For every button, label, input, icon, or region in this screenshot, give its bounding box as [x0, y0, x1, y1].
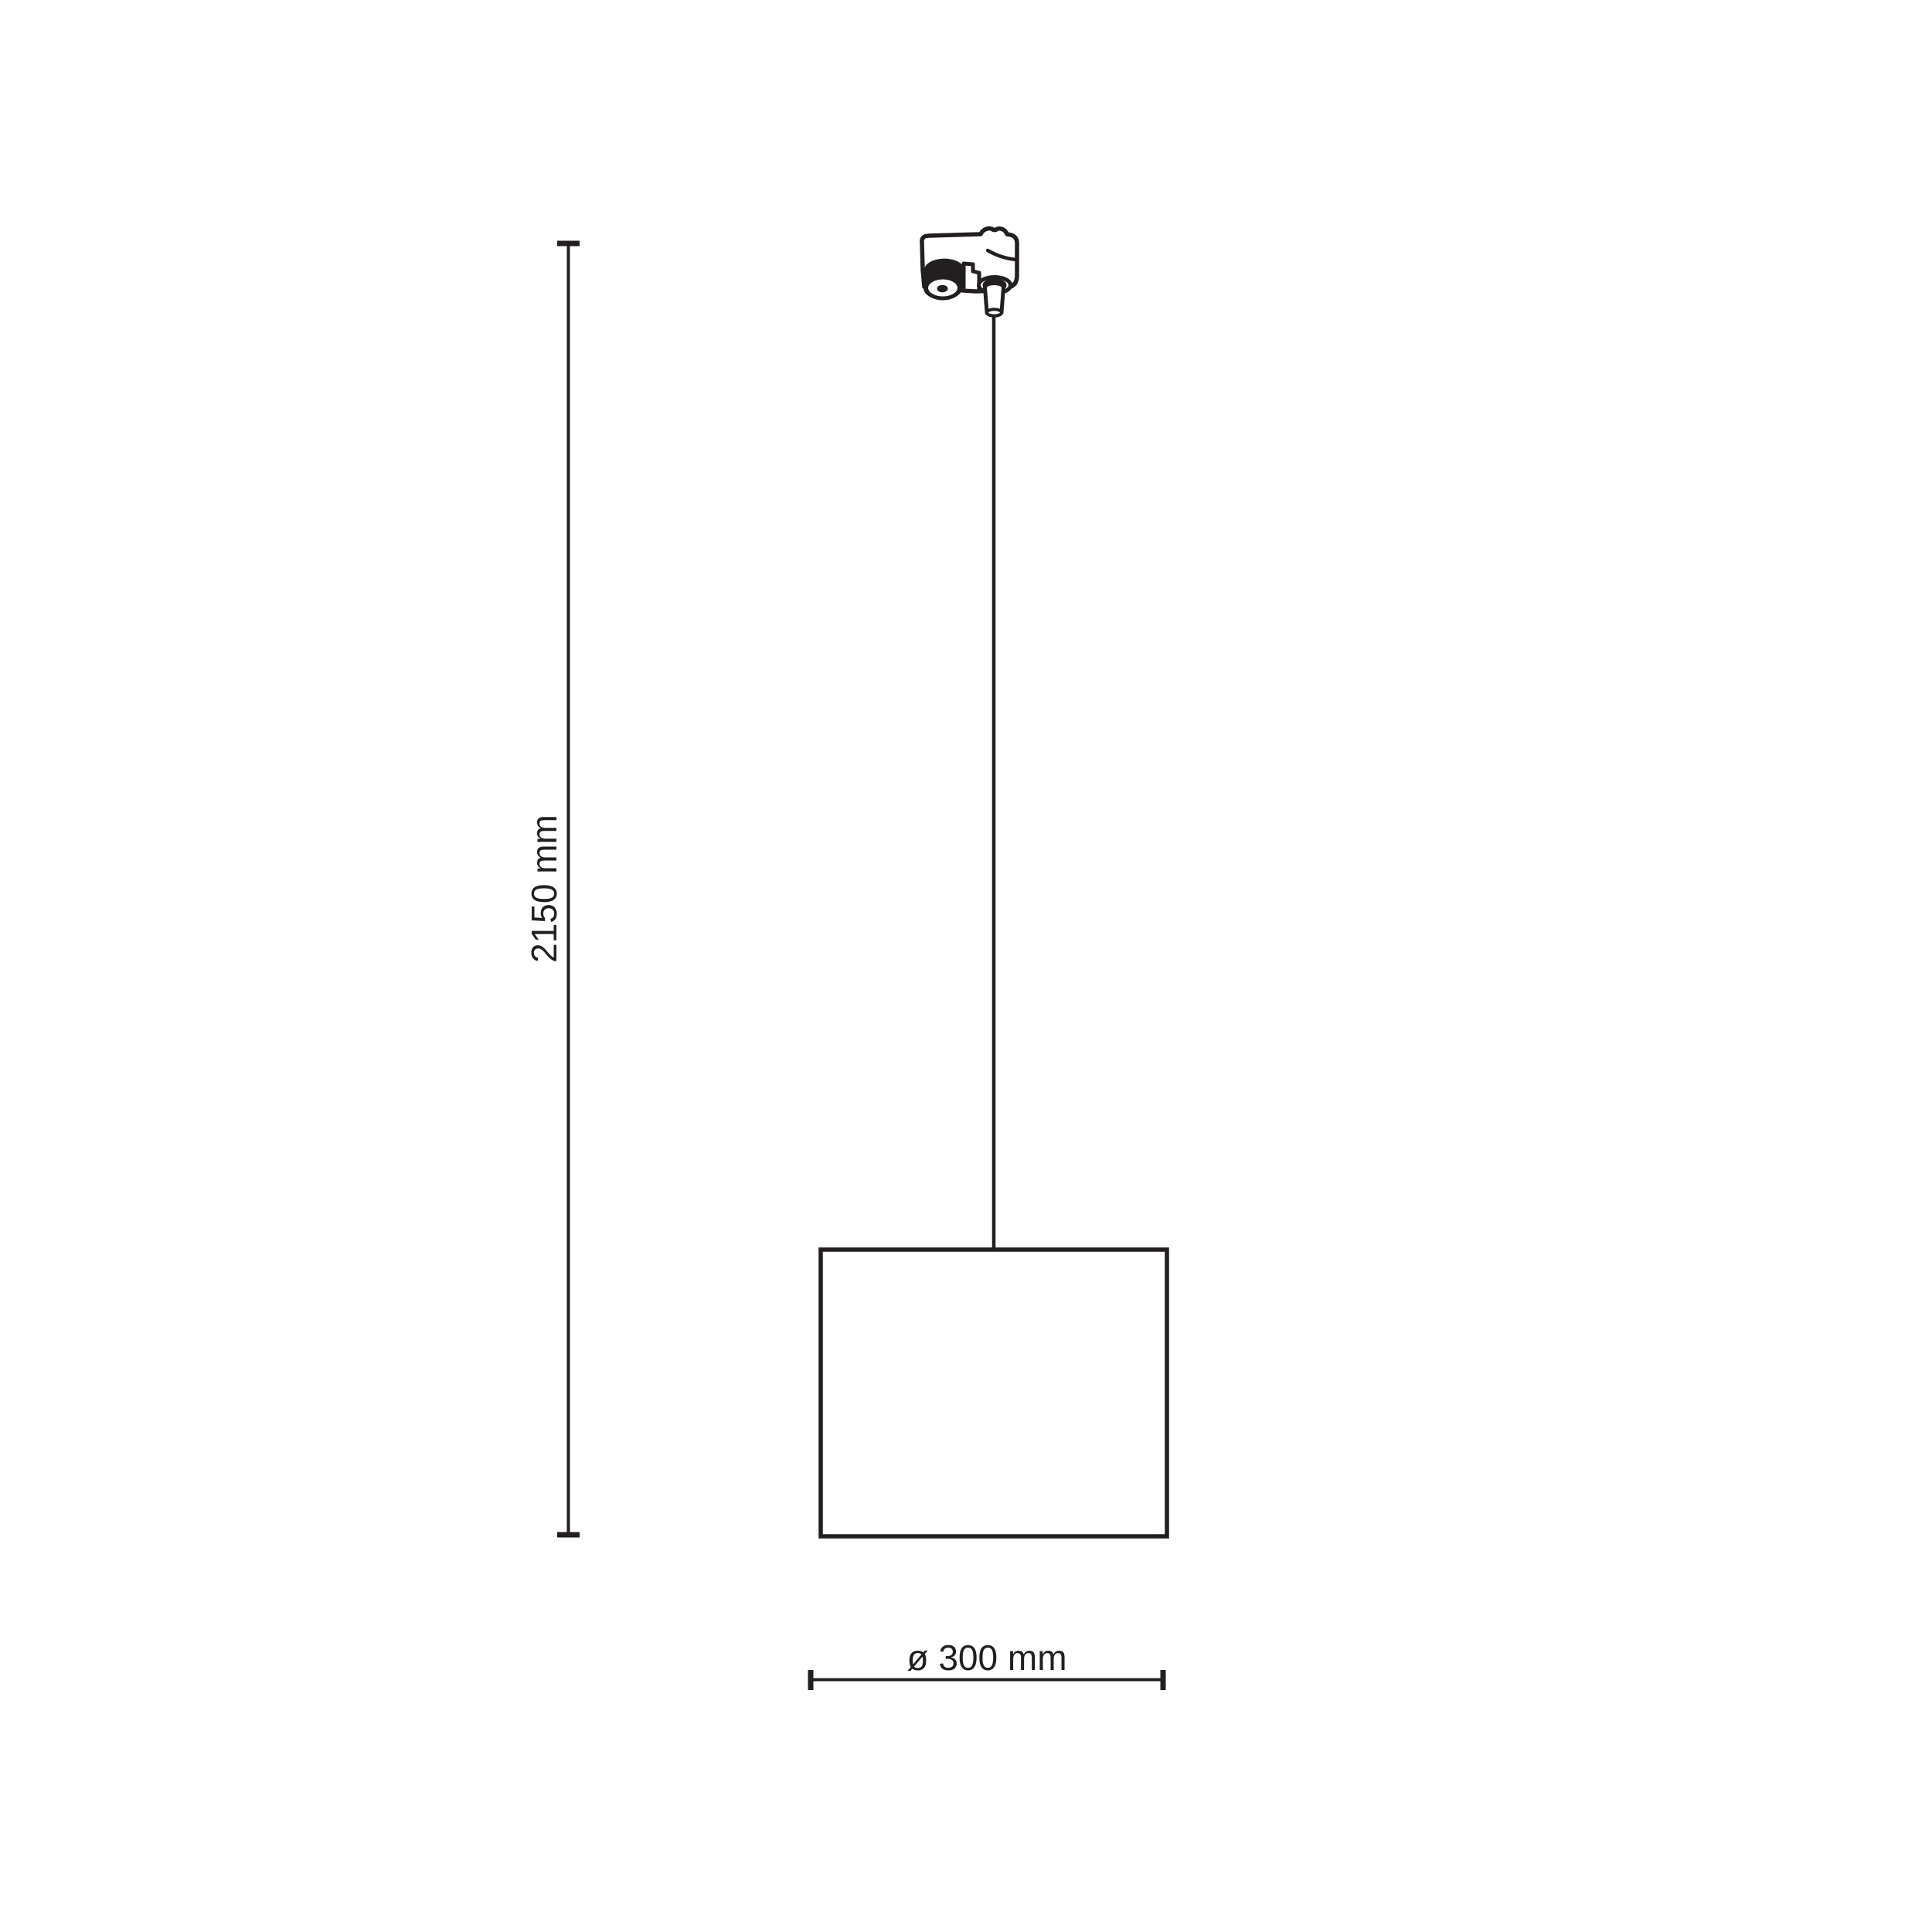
adapter-knob-hole — [937, 285, 948, 293]
height-dimension: 2150 mm — [524, 243, 580, 1535]
height-dimension-label: 2150 mm — [524, 815, 564, 963]
technical-drawing-canvas: 2150 mm — [0, 0, 1932, 1932]
diameter-dimension: ø 300 mm — [811, 1638, 1163, 1690]
diameter-dimension-label: ø 300 mm — [906, 1638, 1066, 1678]
pendant-lamp-dimension-diagram: 2150 mm — [0, 0, 1932, 1932]
lampshade — [821, 1250, 1167, 1536]
track-adapter-illustration — [922, 229, 1017, 316]
